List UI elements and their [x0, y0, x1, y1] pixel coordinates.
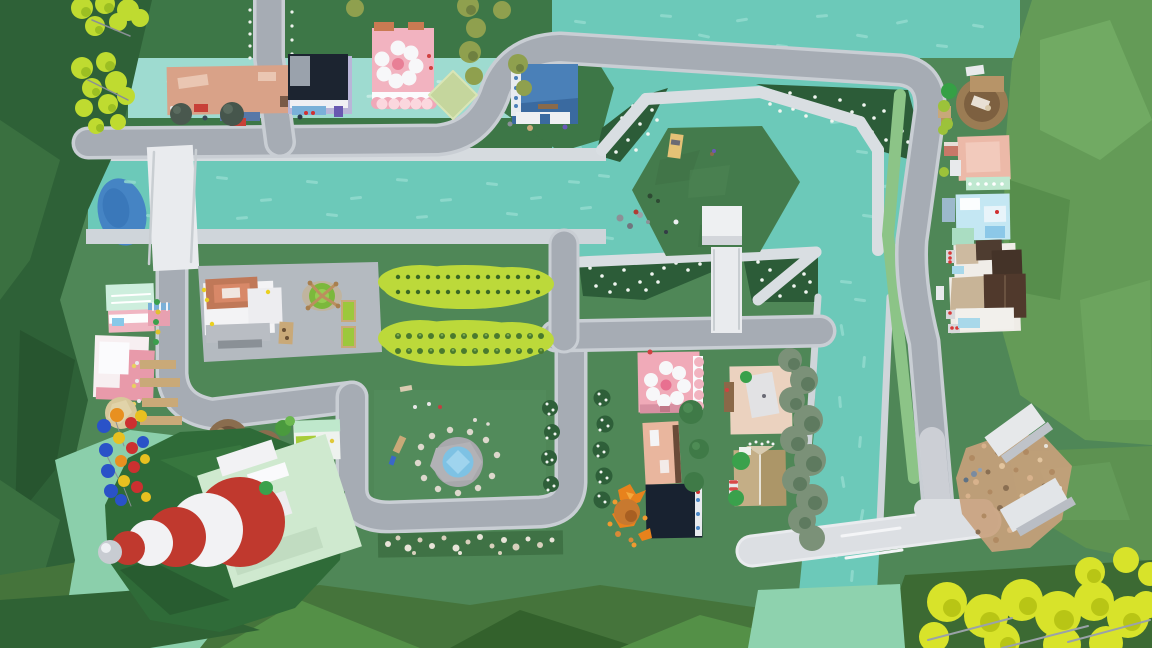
- sky-shop-window: [985, 226, 1005, 238]
- motel-skylight: [660, 460, 670, 473]
- peach-house-deck: [724, 382, 734, 412]
- sky-shop-annex: [952, 228, 974, 245]
- civic-block: [198, 262, 382, 362]
- cedar-window: [958, 318, 980, 328]
- hardware-plank: [538, 104, 558, 109]
- tower-lamp-glint: [101, 543, 111, 553]
- dark-store-door: [334, 106, 343, 117]
- game-viewport[interactable]: [0, 0, 1152, 648]
- picnic-table-3: [142, 398, 178, 407]
- motel-door: [650, 430, 660, 446]
- rose-house-steps: [950, 160, 961, 176]
- bakery-north-chimney-2: [408, 22, 424, 30]
- picnic-table-2: [140, 378, 180, 387]
- east-hill-facet-3: [1080, 280, 1152, 420]
- plaza-cube-face: [702, 236, 742, 245]
- dark-store-roof-panel: [290, 56, 310, 86]
- warehouse-car-red: [194, 104, 208, 112]
- field-a-row-1: [396, 275, 540, 279]
- hedge-bed: [378, 530, 563, 557]
- cocoa-house-roof-tan: [956, 244, 979, 265]
- boutique-roof: [106, 283, 155, 311]
- cocoa-house-roof-2: [992, 249, 1023, 276]
- seesaw: [278, 322, 293, 345]
- bench-seat-2: [343, 328, 354, 346]
- sky-shop-door-dot: [995, 210, 999, 214]
- rose-house-roof-top: [965, 141, 1000, 172]
- field-a-r: [470, 267, 554, 301]
- school-wing: [247, 287, 282, 324]
- tower-lamp-dome: [98, 540, 122, 564]
- sky-shop-counter: [942, 198, 955, 222]
- peach-house-tree: [740, 371, 752, 383]
- cedar-roof-tan: [950, 276, 984, 310]
- canal-mouth-shore: [748, 584, 905, 648]
- peach-house-vent: [762, 394, 766, 398]
- dark-store-windows: [292, 106, 326, 115]
- bench-seat-1: [343, 302, 354, 320]
- bakery-north-awning-alt: [377, 99, 433, 110]
- sky-shop-trim-2: [984, 206, 1006, 222]
- peach-house-flag: [725, 388, 729, 392]
- town-scene[interactable]: [0, 0, 1152, 648]
- garden-stand-roof: [294, 419, 340, 433]
- plaza-bridge: [711, 247, 742, 333]
- school-skylight: [222, 288, 240, 299]
- field-a-row-2: [396, 290, 540, 294]
- cocoa-flowers: [948, 251, 952, 264]
- boutique-window: [112, 318, 124, 326]
- school-entry-shadow: [218, 339, 262, 349]
- hardware-door: [540, 114, 550, 124]
- hex-light: [688, 165, 730, 198]
- roundhouse-door: [985, 105, 991, 111]
- roundhouse-annex: [970, 76, 1004, 92]
- bakery-north-flower-center: [392, 58, 404, 70]
- east-avenue: [556, 331, 820, 336]
- bakery-north-chimney-1: [374, 22, 394, 31]
- bakery-south-flower-center: [661, 380, 672, 391]
- plaza-cube-top: [702, 206, 742, 236]
- field-a-l: [378, 265, 462, 299]
- rose-house-shed-top: [944, 142, 958, 146]
- warehouse-roof-hatch: [258, 72, 276, 81]
- sky-shop-trim-1: [960, 198, 980, 210]
- cedar-fence: [936, 286, 944, 300]
- picnic-table-1: [140, 360, 176, 369]
- cafe-skylight: [98, 341, 129, 374]
- bakery-south-door: [660, 406, 670, 412]
- bakery-south-rose: [648, 350, 653, 355]
- ring-road-white-end: [932, 440, 938, 506]
- cocoa-window: [952, 266, 964, 274]
